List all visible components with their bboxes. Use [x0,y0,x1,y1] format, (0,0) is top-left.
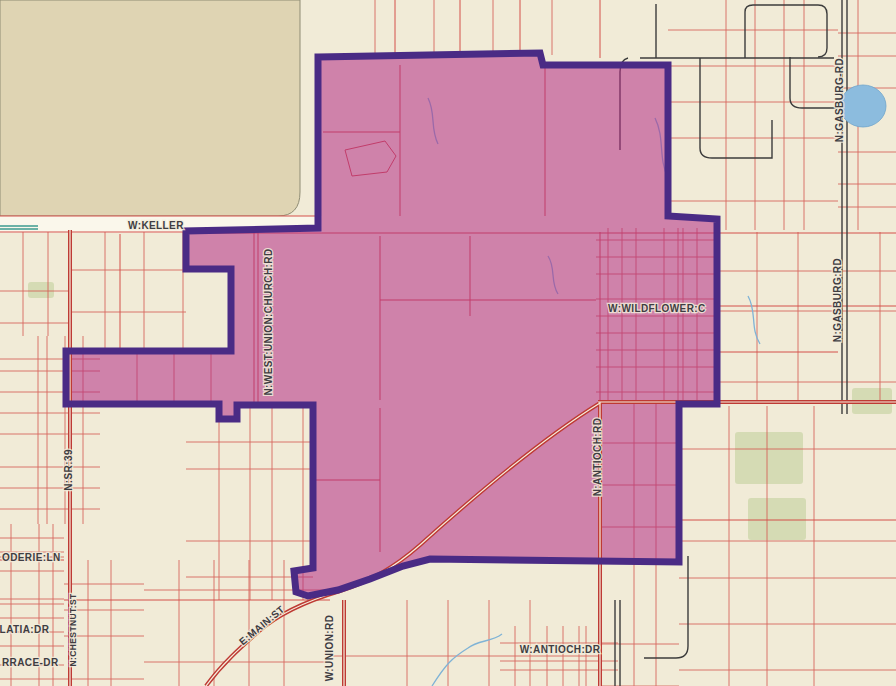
road-label-7: ODERIE:LN [2,552,61,563]
road-label-0: W:KELLER [128,220,184,231]
road-label-12: W:UNION:RD [324,615,335,682]
road-label-2: W:WILDFLOWER:C [608,303,706,314]
road-label-4: N:GASBURG-RD [834,58,845,142]
map-canvas[interactable]: W:KELLERN:WEST:UNION:CHURCH:RDW:WILDFLOW… [0,0,896,686]
road-label-10: N:CHESTNUT:ST [68,593,78,667]
road-label-1: N:WEST:UNION:CHURCH:RD [263,248,274,395]
road-label-9: RRACE-DR [2,657,59,668]
pond [840,85,886,127]
road-label-3: N:ANTIOCH:RD [592,418,603,497]
road-label-8: ALATIA:DR [0,624,50,635]
unmapped-tan-block [0,0,300,216]
parcel-map-svg: W:KELLERN:WEST:UNION:CHURCH:RDW:WILDFLOW… [0,0,896,686]
road-label-13: W:ANTIOCH:DR [520,644,601,655]
road-label-6: N:SR:39 [63,449,74,491]
road-label-5: N:GASBURG:RD [832,258,843,342]
